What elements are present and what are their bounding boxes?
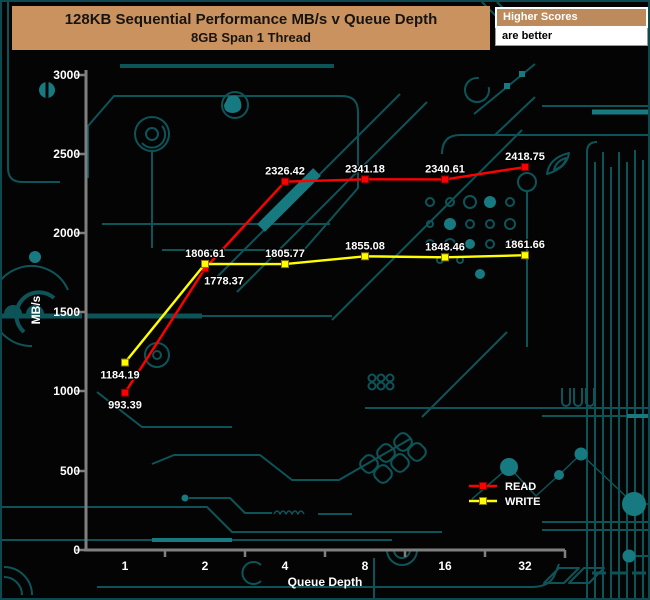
legend-read-label: READ (505, 481, 536, 493)
read-marker (122, 389, 129, 396)
y-tick: 500 (60, 464, 80, 478)
write-marker (282, 261, 289, 268)
y-tick-labels: 3000 2500 2000 1500 1000 500 0 (53, 68, 80, 557)
circuit-decoration (2, 2, 650, 600)
x-tick: 1 (122, 559, 129, 573)
page-subtitle: 8GB Span 1 Thread (12, 29, 490, 46)
y-axis-title: MB/s (29, 295, 43, 324)
read-marker (282, 178, 289, 185)
value-label: 1805.77 (265, 248, 305, 260)
value-label: 1184.19 (100, 370, 139, 382)
write-marker (442, 254, 449, 261)
value-label: 2326.42 (265, 166, 305, 178)
value-label: 1806.61 (185, 248, 225, 260)
x-tick: 2 (202, 559, 209, 573)
value-label: 1861.66 (505, 239, 545, 251)
value-label: 2340.61 (425, 163, 465, 175)
performance-chart: 3000 2500 2000 1500 1000 500 0 1 2 4 8 1… (2, 2, 650, 600)
write-marker (522, 252, 529, 259)
x-tick: 8 (362, 559, 369, 573)
y-tick: 3000 (53, 68, 80, 82)
value-label: 993.39 (108, 400, 142, 412)
x-tick: 4 (282, 559, 289, 573)
chart-legend: READWRITE (469, 481, 540, 508)
x-tick-labels: 1 2 4 8 16 32 (122, 559, 532, 573)
value-label: 2418.75 (505, 151, 545, 163)
y-tick: 1500 (53, 305, 80, 319)
series-layer: 993.391778.372326.422341.182340.612418.7… (100, 151, 544, 412)
y-tick: 0 (73, 543, 80, 557)
note-title: Higher Scores (495, 7, 648, 28)
write-marker (122, 359, 129, 366)
note-box: Higher Scores are better (495, 7, 648, 46)
legend-read-marker (480, 483, 487, 490)
value-label: 1855.08 (345, 240, 385, 252)
legend-write-label: WRITE (505, 496, 540, 508)
note-body: are better (495, 28, 648, 46)
x-axis-title: Queue Depth (288, 575, 363, 589)
value-label: 2341.18 (345, 163, 385, 175)
write-marker (362, 253, 369, 260)
x-tick: 16 (438, 559, 452, 573)
x-tick: 32 (518, 559, 532, 573)
page-title: 128KB Sequential Performance MB/s v Queu… (12, 6, 490, 29)
read-marker (362, 176, 369, 183)
read-marker (442, 176, 449, 183)
y-tick: 2500 (53, 147, 80, 161)
y-tick: 2000 (53, 226, 80, 240)
y-tick: 1000 (53, 384, 80, 398)
chart-header: 128KB Sequential Performance MB/s v Queu… (12, 6, 490, 50)
read-marker (522, 164, 529, 171)
write-marker (202, 260, 209, 267)
value-label: 1848.46 (425, 241, 465, 253)
write-line (125, 255, 525, 362)
screenshot-frame: 128KB Sequential Performance MB/s v Queu… (0, 0, 650, 600)
legend-write-marker (480, 498, 487, 505)
value-label: 1778.37 (204, 275, 244, 287)
